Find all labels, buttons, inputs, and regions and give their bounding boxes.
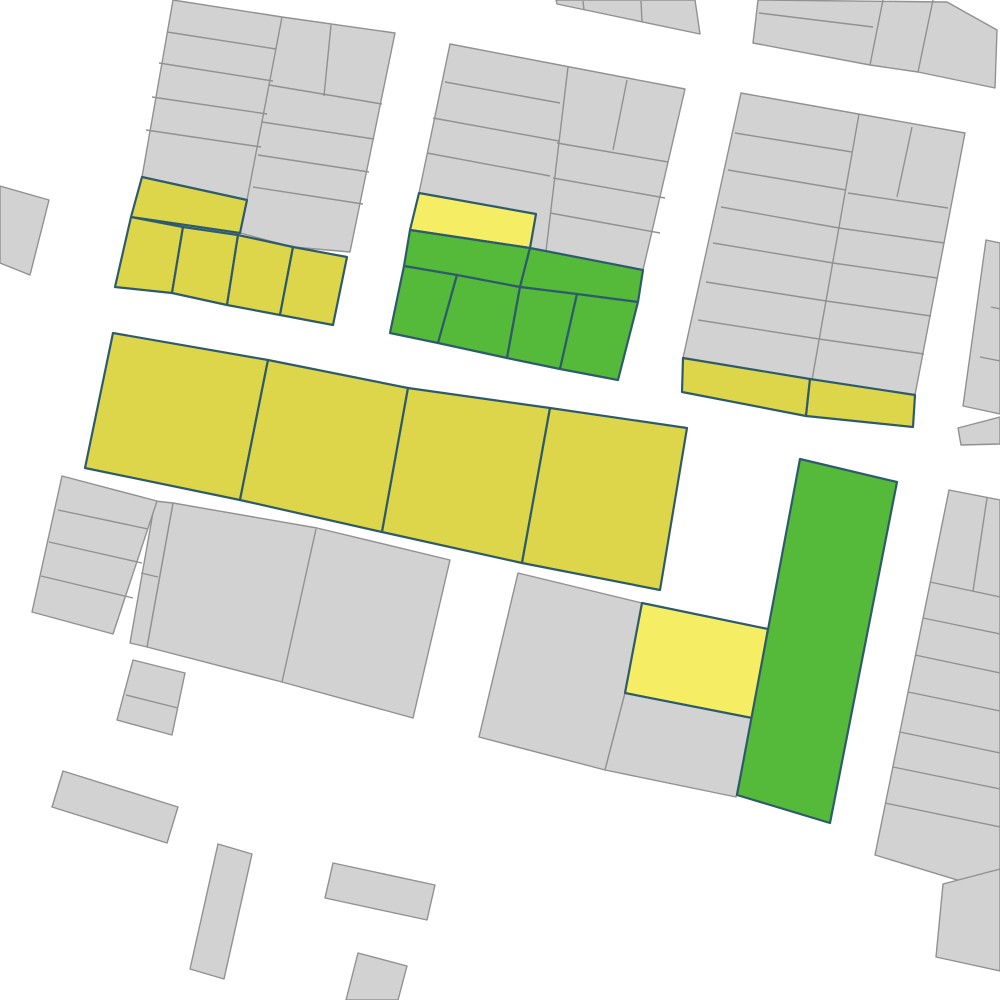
block-small-two-rows bbox=[117, 660, 185, 735]
parcel-yellow-big-4[interactable] bbox=[522, 408, 687, 590]
parcel-bottom-strip-3 bbox=[325, 863, 435, 920]
sliver-right-edge-tip-outline[interactable] bbox=[958, 417, 1000, 445]
block-right-column bbox=[875, 490, 1000, 893]
parcel-yellow-big-3[interactable] bbox=[382, 388, 550, 563]
parcel-bottom-strip-4 bbox=[346, 953, 407, 1000]
parcel-yellow-big-1[interactable] bbox=[85, 333, 268, 500]
parcel-bottom-strip-2-outline[interactable] bbox=[190, 844, 252, 979]
block-top-center-edge bbox=[556, 0, 700, 34]
block-small-two-rows-outline[interactable] bbox=[117, 660, 185, 735]
parcel-yellow-a4[interactable] bbox=[280, 247, 347, 325]
parcel-left-edge bbox=[0, 186, 49, 275]
block-right-column-outline[interactable] bbox=[875, 490, 1000, 893]
parcel-bottom-strip-1 bbox=[52, 771, 178, 843]
parcel-bottom-strip-2 bbox=[190, 844, 252, 979]
block-top-center-edge-lot-line-0 bbox=[583, 1, 584, 10]
parcel-bottom-right-corner bbox=[936, 869, 1000, 971]
parcel-left-edge-outline[interactable] bbox=[0, 186, 49, 275]
sliver-right-edge bbox=[963, 240, 1000, 414]
block-top-center-edge-outline[interactable] bbox=[556, 0, 700, 34]
map-canvas bbox=[0, 0, 1000, 1000]
sliver-right-edge-tip bbox=[958, 417, 1000, 445]
block-top-right-corner-outline[interactable] bbox=[753, 0, 997, 88]
sliver-right-edge-outline[interactable] bbox=[963, 240, 1000, 414]
parcel-bottom-right-corner-outline[interactable] bbox=[936, 869, 1000, 971]
parcel-bottom-strip-4-outline[interactable] bbox=[346, 953, 407, 1000]
parcel-bottom-strip-3-outline[interactable] bbox=[325, 863, 435, 920]
parcel-yellow-big-2[interactable] bbox=[240, 360, 408, 532]
block-top-right-corner bbox=[753, 0, 997, 88]
parcel-bottom-strip-1-outline[interactable] bbox=[52, 771, 178, 843]
block-right-top-gray-outline[interactable] bbox=[683, 93, 965, 395]
block-right-top-gray bbox=[683, 93, 965, 395]
block-top-center-edge-lot-line-1 bbox=[641, 1, 642, 22]
parcel-map bbox=[0, 0, 1000, 1000]
